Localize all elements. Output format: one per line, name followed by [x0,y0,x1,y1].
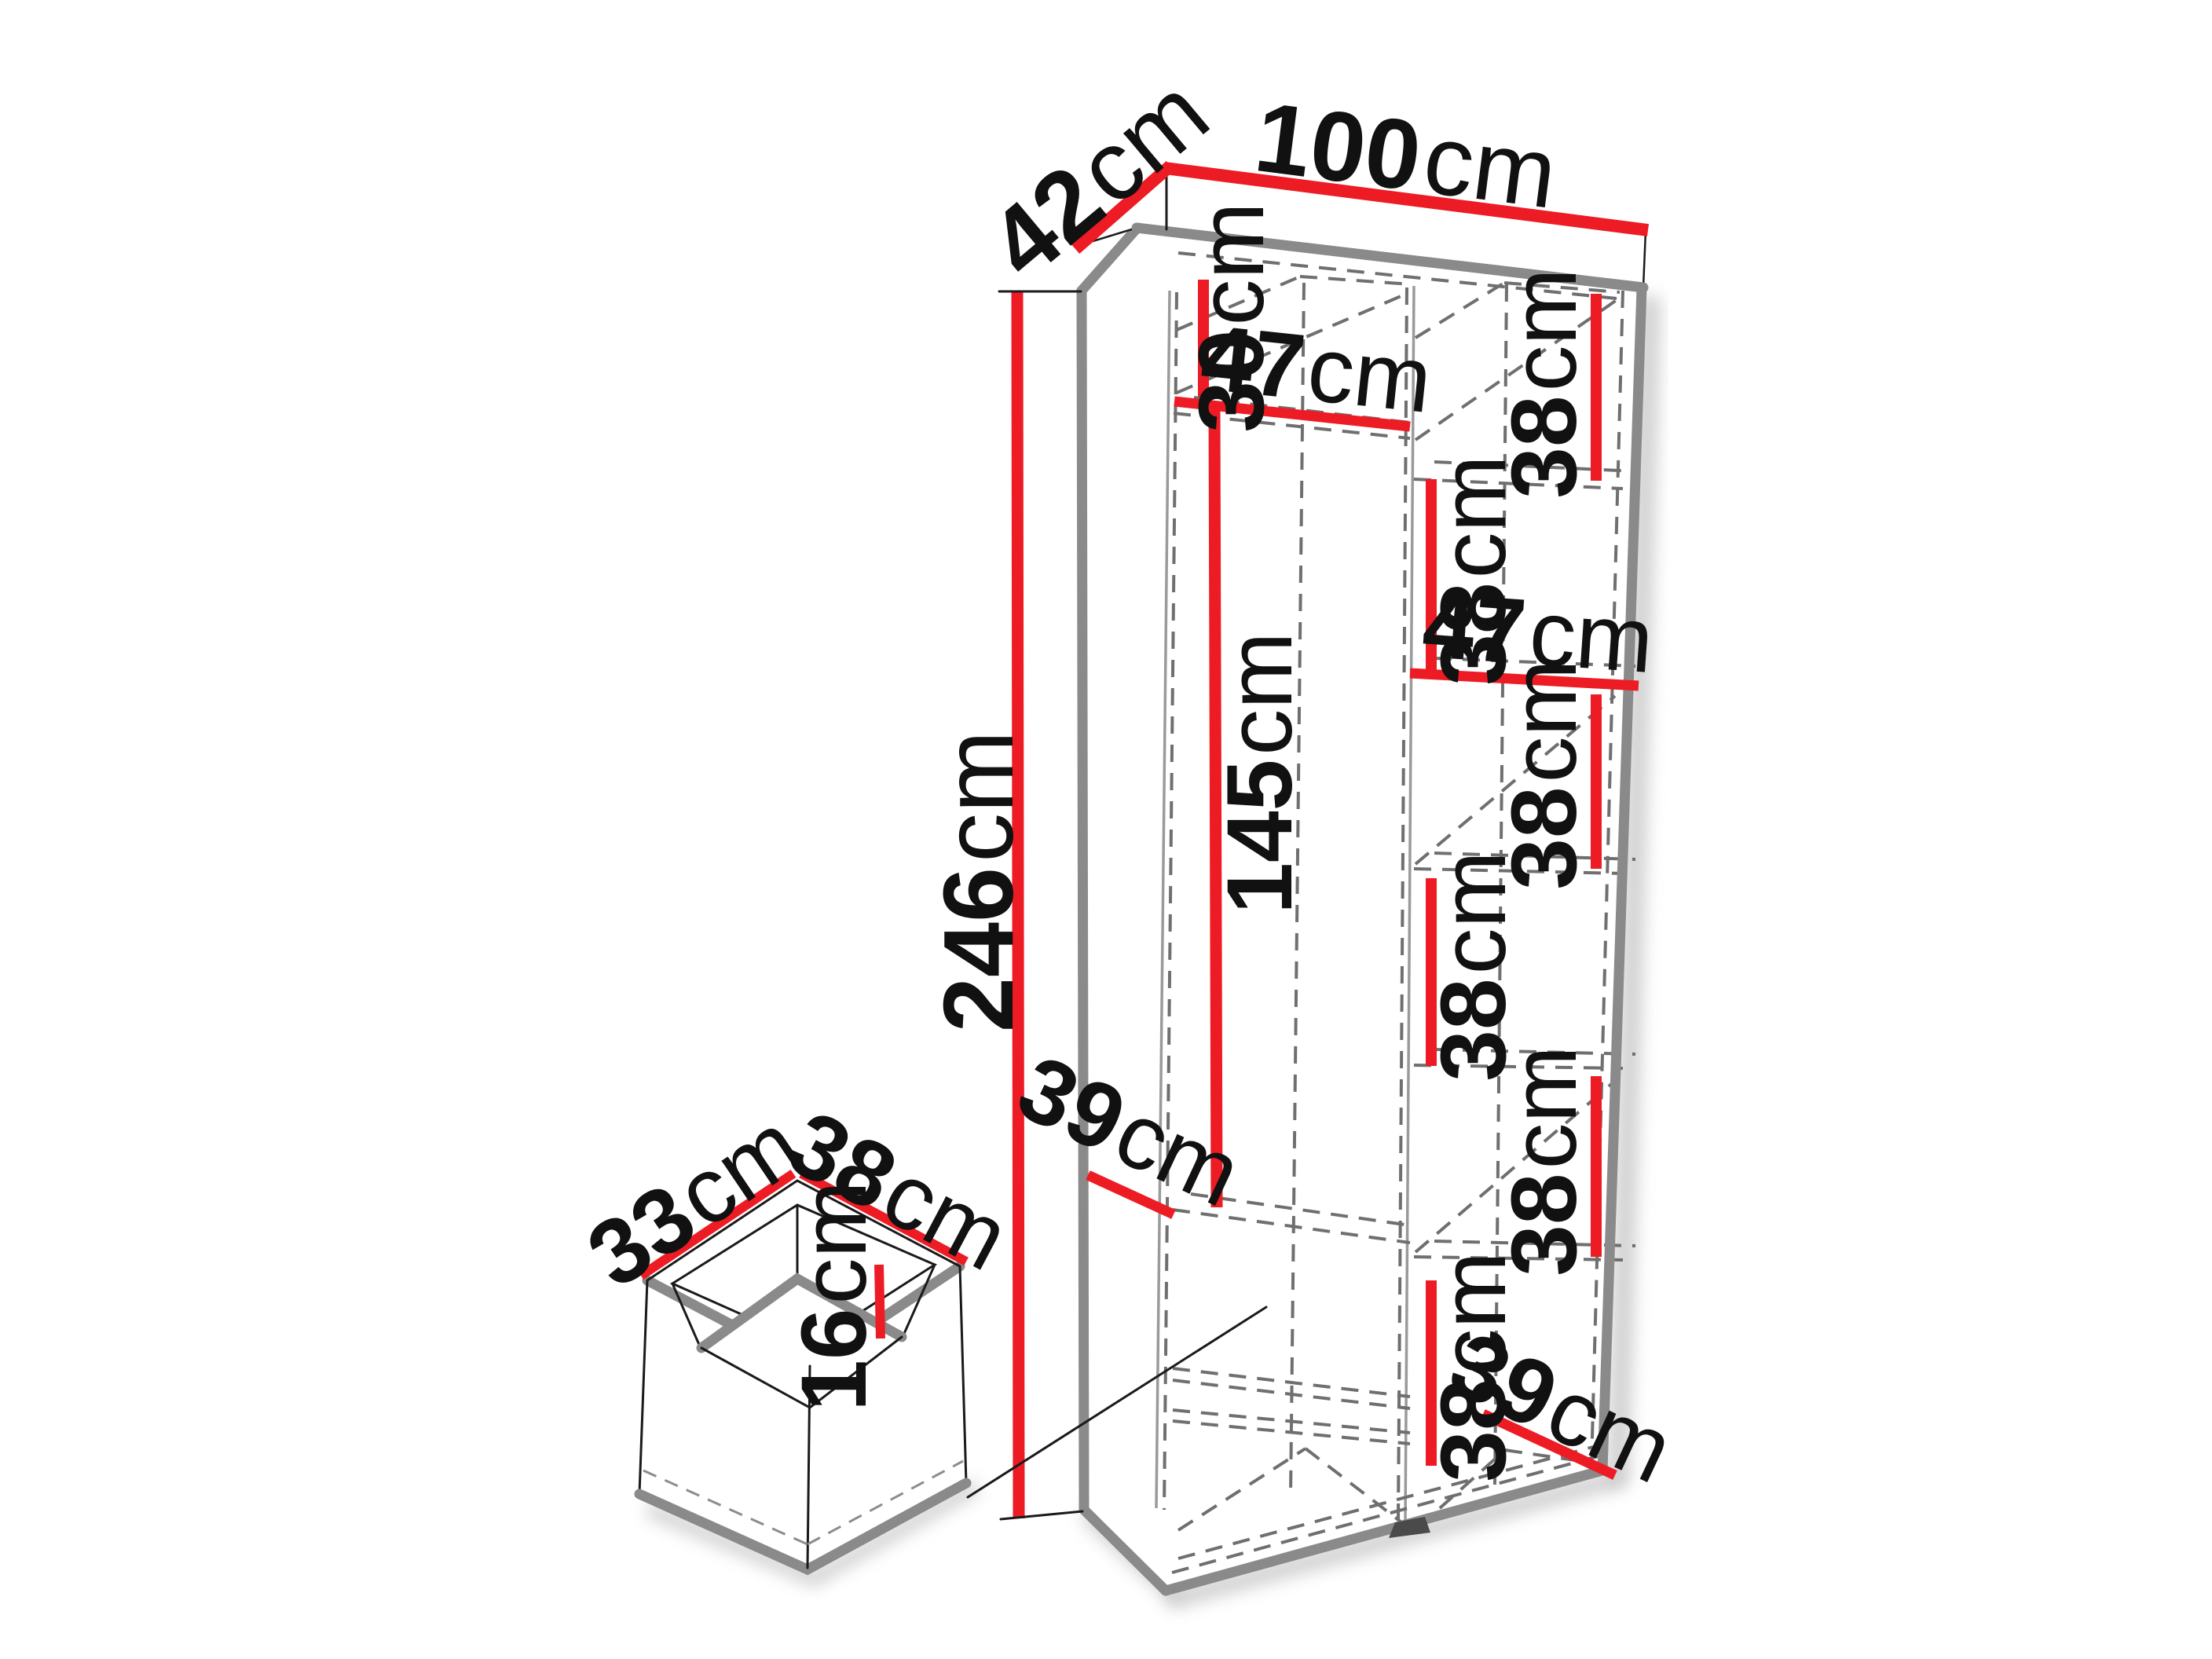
dim-label-hanging-section: 145cm [1208,632,1312,914]
dim-label-right-38-5: 38cm [1492,1046,1596,1276]
dim-label-height: 246cm [923,731,1034,1032]
diagram-page: 100cm 42cm 246cm 30cm 47cm 145cm 39cm 38… [0,0,2212,1659]
dim-label-drawer-height: 16cm [782,1181,886,1412]
left-edge [1082,291,1084,1510]
wardrobe-dimension-diagram: 100cm 42cm 246cm 30cm 47cm 145cm 39cm 38… [0,0,2212,1659]
